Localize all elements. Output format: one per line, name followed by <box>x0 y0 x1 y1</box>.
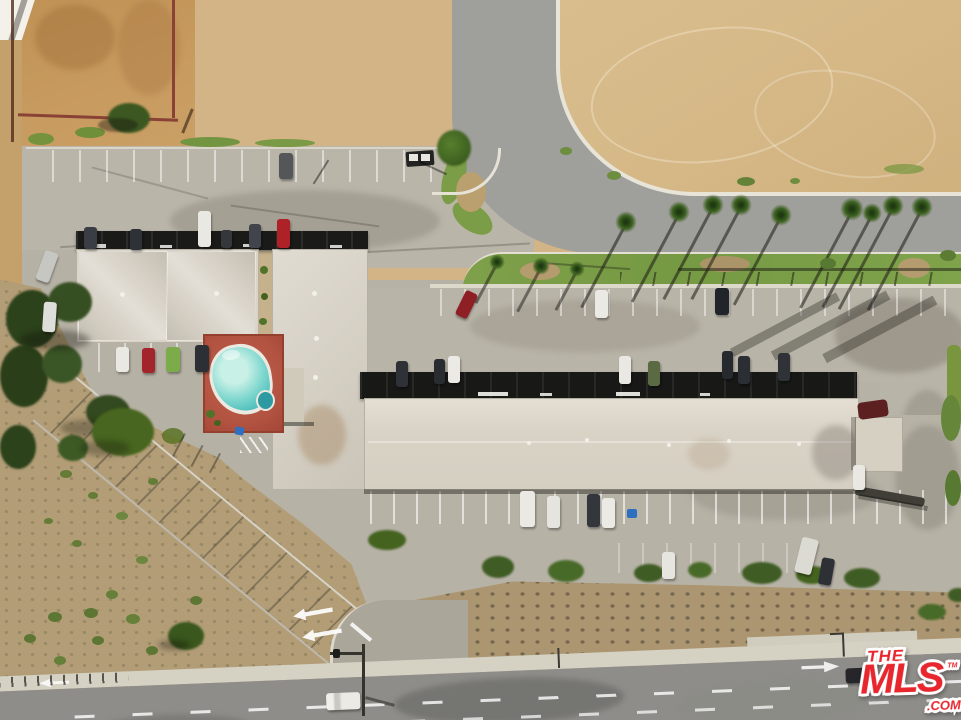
awning-left-white-1 <box>96 244 106 248</box>
lot-top-curb <box>26 147 450 149</box>
entrance-sign-panel-2 <box>421 154 430 161</box>
car-awning-8 <box>778 353 790 381</box>
car-annex-white <box>853 465 865 490</box>
vertical-wing-vent-1 <box>312 291 317 296</box>
gravel-shrub-2 <box>84 608 98 618</box>
left-wing-vent-1 <box>120 292 125 297</box>
gravel-shrub-3 <box>126 614 140 624</box>
car-leftwing-4 <box>249 224 261 248</box>
pool-spa <box>256 390 275 411</box>
car-northlot-suv <box>715 288 729 315</box>
field-left-patch-2 <box>118 0 180 95</box>
annex-roof <box>855 417 903 472</box>
gravel-shrub-4 <box>92 636 104 645</box>
deck-plant-1 <box>206 410 215 418</box>
entrance-sign-panel-1 <box>409 154 418 161</box>
field-shrub-5 <box>884 164 924 174</box>
tree-row-7 <box>844 568 880 588</box>
tree-row-5 <box>742 562 782 584</box>
gravel-shrub-9 <box>190 596 202 605</box>
car-awning-3 <box>448 356 460 383</box>
awning-left-white-2 <box>160 245 172 248</box>
gravel-shrub-1 <box>48 612 62 622</box>
car-awning-1 <box>396 361 408 387</box>
long-wing-vent-1 <box>527 441 531 445</box>
left-wing-vent-2 <box>214 291 219 296</box>
car-upper-lot <box>279 153 293 179</box>
palm-6 <box>702 194 724 216</box>
tree-row-1 <box>482 556 514 578</box>
hatch-zone <box>240 437 268 453</box>
grass-patch-4 <box>255 139 315 147</box>
long-wing-vent-5 <box>797 442 801 446</box>
left-wing-hip-2 <box>166 251 256 341</box>
parkway-bush-1 <box>940 250 956 261</box>
vertical-wing-vent-3 <box>313 375 318 380</box>
palm-7 <box>730 194 752 216</box>
car-awning-5 <box>648 361 660 386</box>
fence-line-v2 <box>172 0 175 118</box>
long-wing-south-shadow <box>364 489 857 494</box>
tree-bl-shadow-1 <box>20 330 90 350</box>
awning-left-white-4 <box>330 245 342 248</box>
car-south-white <box>547 496 560 528</box>
field-shrub-1 <box>560 147 572 155</box>
field-shrub-4 <box>790 178 800 184</box>
long-wing-roof <box>364 398 859 491</box>
palm-12 <box>911 196 933 218</box>
grass-patch-1 <box>28 133 54 145</box>
vertical-wing-vent-2 <box>314 336 319 341</box>
gravel-shrub-5 <box>54 656 66 665</box>
car-leftwing-2 <box>130 229 142 250</box>
slope-shrub-4 <box>72 540 82 547</box>
blvd-car-white <box>326 692 361 710</box>
car-leftwing-1 <box>84 227 97 249</box>
tree-bl-4 <box>42 345 82 383</box>
slope-shrub-7 <box>148 478 158 485</box>
handicap-mark <box>234 426 244 435</box>
slope-shrub-2 <box>88 492 98 499</box>
tree-row-3 <box>634 564 664 582</box>
slope-shrub-5 <box>136 556 148 564</box>
field-shrub-2 <box>607 171 621 180</box>
car-leftwing-van <box>198 211 211 247</box>
long-wing-vent-4 <box>727 439 731 443</box>
palm-1 <box>489 254 505 270</box>
car-awning-2 <box>434 359 445 384</box>
car-poolrow-green <box>166 347 180 372</box>
palm-5 <box>668 201 690 223</box>
palm-9 <box>840 197 864 221</box>
palm-10 <box>862 203 882 223</box>
slope-shrub-6 <box>44 518 53 524</box>
car-awning-4 <box>619 356 631 384</box>
mls-watermark: THE MLS TM .COM <box>857 646 961 718</box>
entrance-tree <box>437 130 471 166</box>
car-poolrow-red <box>142 348 155 373</box>
car-northlot-white <box>595 290 608 318</box>
fence-line-vertical <box>11 0 14 142</box>
long-wing-ridge <box>368 441 854 443</box>
annex-shadow <box>851 417 856 470</box>
tree-topleft-shadow <box>98 118 138 132</box>
tree-near-road <box>368 530 406 550</box>
long-wing-vent-3 <box>667 443 671 447</box>
gravel-shrub-8 <box>106 590 118 599</box>
rock-bush-shadow <box>158 640 190 650</box>
awning-long-white-2 <box>540 393 552 396</box>
mls-logo-trademark: TM <box>947 662 957 669</box>
car-south-dark <box>587 494 600 527</box>
tree-bl-6 <box>0 425 36 469</box>
slope-tree-shadow <box>80 440 130 456</box>
awning-long-white-4 <box>700 393 710 396</box>
car-south-row2 <box>662 552 675 579</box>
long-wing-vent-2 <box>585 438 589 442</box>
mls-logo-com-text: .COM <box>927 697 961 713</box>
slope-shrub-3 <box>116 512 128 520</box>
gravel-shrub-7 <box>146 646 158 655</box>
palm-3 <box>569 261 585 277</box>
car-awning-6 <box>722 351 733 379</box>
palm-4 <box>615 211 637 233</box>
courtyard-plant-1 <box>260 266 268 274</box>
long-wing-stain-2 <box>688 438 730 470</box>
aerial-photo: THE MLS TM .COM <box>0 0 961 720</box>
awning-long-white-3 <box>616 392 640 396</box>
stripes-top-row <box>52 150 448 182</box>
deck-plant-2 <box>214 420 221 426</box>
courtyard-plant-3 <box>259 318 267 325</box>
car-leftwing-3 <box>221 230 232 248</box>
east-bush-2 <box>945 470 961 506</box>
parkway-bush-2 <box>820 258 836 269</box>
car-poolrow-white <box>116 347 129 372</box>
signal-head <box>333 649 340 658</box>
vertical-wing-stain <box>298 405 346 465</box>
handicap-mark-south <box>627 509 637 518</box>
palm-2 <box>532 257 550 275</box>
field-left-patch-1 <box>35 5 115 70</box>
gravel-shrub-6 <box>24 634 36 643</box>
field-shrub-3 <box>737 177 755 186</box>
grass-patch-3 <box>180 137 240 147</box>
mls-logo-mls-text: MLS <box>859 653 943 704</box>
car-leftwing-red <box>277 219 290 248</box>
car-south-white-2 <box>602 498 615 528</box>
slope-shrub-1 <box>60 470 72 478</box>
courtyard-plant-2 <box>261 293 268 300</box>
tree-row-2 <box>548 560 584 582</box>
tree-row-4 <box>688 562 712 578</box>
palm-11 <box>882 195 904 217</box>
car-poolrow-dark <box>195 345 209 372</box>
east-bush-1 <box>941 395 961 441</box>
awning-long-white-1 <box>478 392 508 396</box>
car-south-truck <box>520 491 535 527</box>
palm-8 <box>770 204 792 226</box>
car-awning-7 <box>738 356 750 384</box>
tree-row-8 <box>918 604 946 620</box>
tree-row-9 <box>948 588 961 602</box>
tree-bl-3 <box>0 345 48 407</box>
car-left-white <box>42 302 57 333</box>
